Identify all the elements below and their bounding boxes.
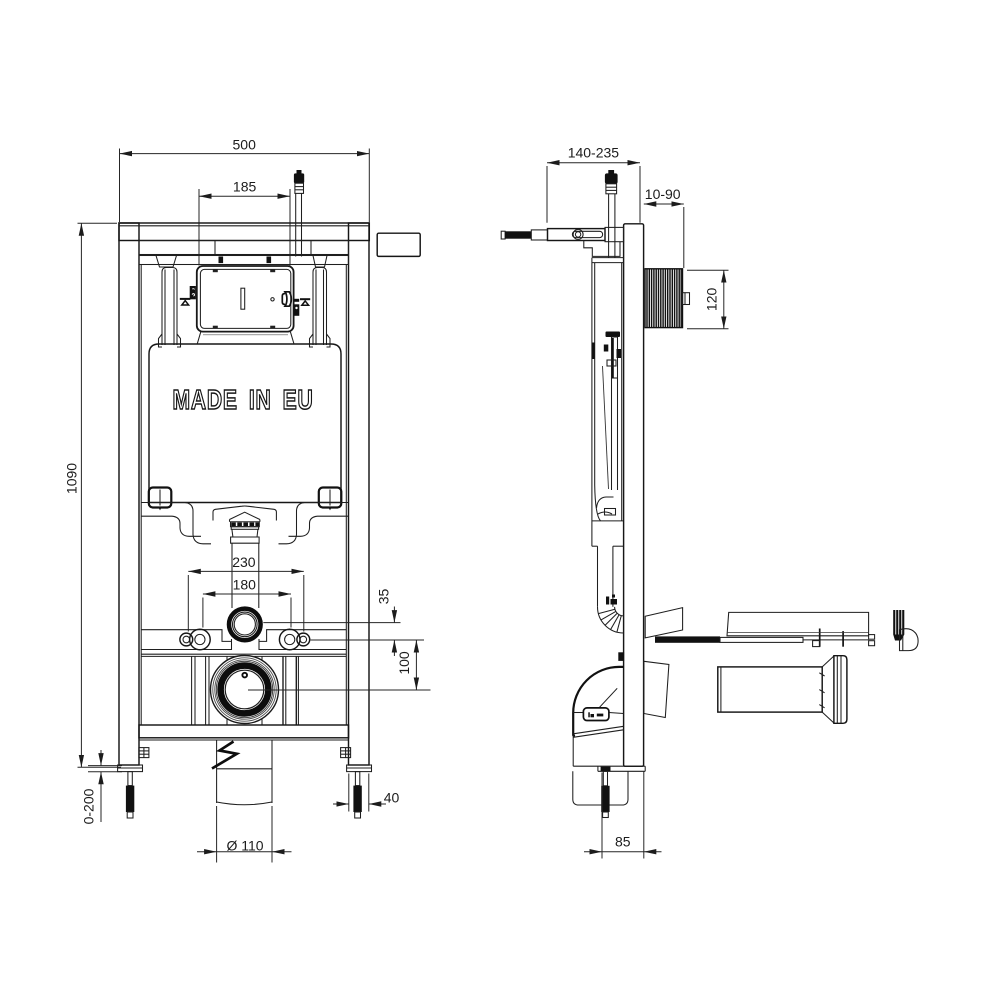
svg-text:185: 185	[233, 178, 257, 194]
svg-text:1090: 1090	[64, 463, 80, 494]
svg-text:85: 85	[615, 833, 631, 849]
svg-text:MADE IN EU: MADE IN EU	[173, 384, 314, 415]
svg-text:120: 120	[704, 288, 720, 312]
svg-text:180: 180	[233, 576, 257, 592]
svg-text:35: 35	[375, 589, 391, 605]
svg-text:230: 230	[232, 554, 256, 570]
svg-text:0-200: 0-200	[81, 788, 97, 824]
svg-text:500: 500	[233, 137, 257, 153]
svg-text:100: 100	[396, 651, 412, 675]
svg-text:40: 40	[384, 790, 400, 806]
svg-text:10-90: 10-90	[645, 186, 681, 202]
svg-text:140-235: 140-235	[568, 144, 620, 160]
svg-text:Ø 110: Ø 110	[226, 838, 263, 854]
